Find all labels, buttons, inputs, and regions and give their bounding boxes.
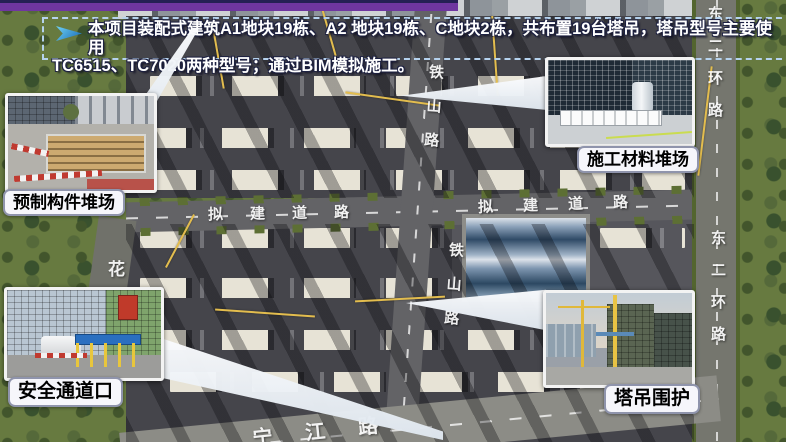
crane-jib (558, 306, 611, 308)
crane-enclosure-label: 塔吊围护 (604, 384, 700, 414)
road-label-planned-left: 拟建道路 (208, 201, 376, 225)
tower-block (654, 313, 692, 370)
precast-stacks (46, 134, 146, 174)
safety-passage-photo (4, 287, 164, 381)
storage-fence (560, 110, 663, 125)
mall-building (462, 214, 590, 302)
tree (63, 104, 79, 120)
crane-mast (581, 300, 584, 366)
crane-enclosure-photo (543, 290, 695, 388)
material-yard-photo (545, 57, 695, 147)
background-structures (75, 96, 154, 124)
material-yard-label: 施工材料堆场 (577, 146, 699, 173)
safety-fence (35, 353, 87, 358)
banner-line-1: 本项目装配式建筑A1地块19栋、A2 地块19栋、C地块2栋，共布置19台塔吊，… (52, 20, 786, 57)
tower-facade (548, 60, 632, 115)
hoist-cage (118, 295, 138, 320)
distant-buildings (546, 324, 596, 357)
road-label-hua: 花 (108, 255, 125, 280)
project-description-banner: 本项目装配式建筑A1地块19栋、A2 地块19栋、C地块2栋，共布置19台塔吊，… (42, 17, 786, 60)
slide: 铁山路 铁山路 拟建道路 拟建道路 东二环路 东二环路 花 宁江路 本项目装配式… (0, 0, 786, 442)
header-bar (0, 3, 458, 11)
ground (546, 367, 692, 385)
crane-jib (596, 332, 634, 336)
road-label-east-ring-lower: 东二环路 (707, 230, 728, 358)
safety-passage-label: 安全通道口 (8, 377, 123, 407)
precast-yard-label: 预制构件堆场 (3, 189, 125, 216)
precast-yard-photo (5, 93, 157, 193)
building-row (600, 228, 685, 248)
silo (632, 82, 654, 114)
